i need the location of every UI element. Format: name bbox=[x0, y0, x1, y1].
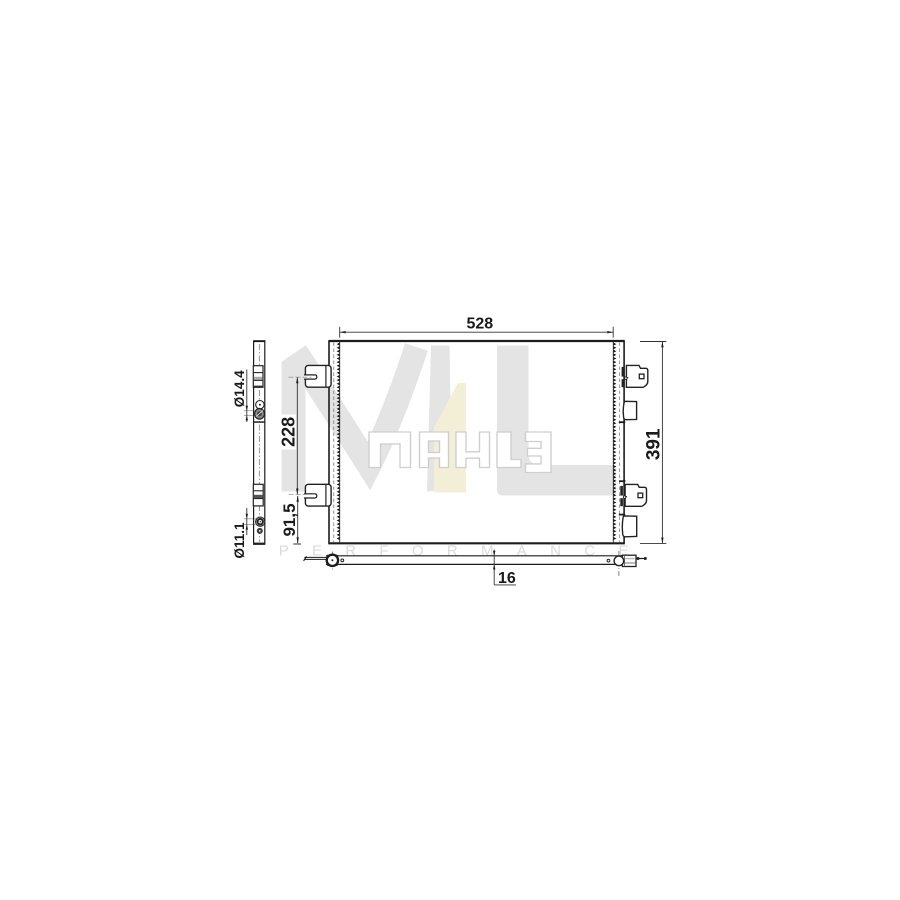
svg-text:Ø11.1: Ø11.1 bbox=[232, 522, 247, 559]
svg-text:Ø14.4: Ø14.4 bbox=[232, 370, 247, 407]
svg-text:91,5: 91,5 bbox=[280, 503, 299, 536]
svg-text:228: 228 bbox=[279, 417, 299, 447]
svg-text:528: 528 bbox=[466, 316, 493, 333]
svg-text:391: 391 bbox=[644, 428, 665, 460]
svg-text:16: 16 bbox=[498, 570, 516, 587]
